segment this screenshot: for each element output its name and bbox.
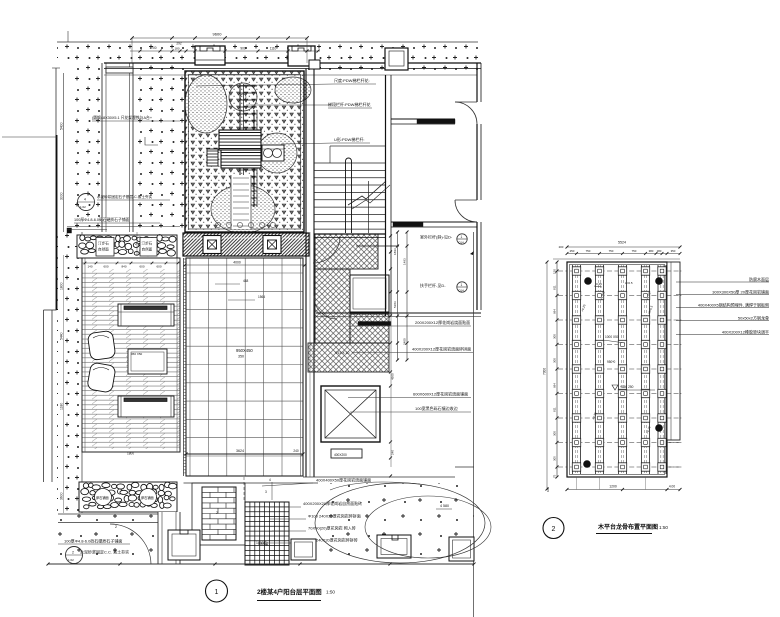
svg-text:1893: 1893 <box>393 248 397 255</box>
svg-text:2: 2 <box>552 526 556 533</box>
svg-text:5524: 5524 <box>618 241 626 245</box>
svg-text:1700: 1700 <box>149 46 156 50</box>
svg-text:水泥砂浆固定石子基层-C.素土夯实: 水泥砂浆固定石子基层-C.素土夯实 <box>97 194 153 199</box>
svg-text:汀步石: 汀步石 <box>98 241 109 246</box>
svg-text:5400: 5400 <box>60 122 64 130</box>
svg-text:600: 600 <box>156 265 161 269</box>
svg-text:750: 750 <box>609 249 614 253</box>
svg-text:684: 684 <box>553 383 557 388</box>
svg-text:1800: 1800 <box>60 282 64 290</box>
svg-text:1: 1 <box>461 235 463 239</box>
svg-text:3: 3 <box>265 490 267 494</box>
svg-text:防腐木面层: 防腐木面层 <box>749 276 769 282</box>
svg-text:400X200X20厚花岗岩自然面贴砖: 400X200X20厚花岗岩自然面贴砖 <box>303 500 362 506</box>
svg-text:100厚Φ4.8-6.0砾石硬质石子铺面: 100厚Φ4.8-6.0砾石硬质石子铺面 <box>64 538 122 544</box>
svg-text:200: 200 <box>559 245 564 249</box>
svg-text:292: 292 <box>176 42 182 46</box>
svg-text:75: 75 <box>553 474 557 478</box>
svg-text:750: 750 <box>632 249 637 253</box>
svg-text:180: 180 <box>546 487 550 492</box>
svg-text:200X200X12厚花岗岩烧面贴面: 200X200X12厚花岗岩烧面贴面 <box>415 319 470 325</box>
svg-text:4: 4 <box>269 478 271 482</box>
svg-text:梯段栏杆:PDW梯栏杆花: 梯段栏杆:PDW梯栏杆花 <box>328 101 370 107</box>
svg-text:400X400X50厚花岗岩烧面铺面: 400X400X50厚花岗岩烧面铺面 <box>316 477 371 483</box>
svg-text:900: 900 <box>240 46 246 50</box>
svg-text:3624: 3624 <box>236 449 244 453</box>
svg-text:180: 180 <box>657 249 662 253</box>
svg-text:D14: D14 <box>459 289 465 293</box>
svg-text:1:02: 1:02 <box>80 205 86 209</box>
svg-text:1110: 1110 <box>270 46 277 50</box>
svg-text:1:50: 1:50 <box>326 590 335 595</box>
svg-text:1180: 1180 <box>60 403 64 410</box>
svg-text:400X200: 400X200 <box>334 453 347 457</box>
svg-text:D14: D14 <box>459 241 465 245</box>
svg-text:L=0.5: L=0.5 <box>625 281 633 285</box>
svg-text:1200: 1200 <box>609 485 617 489</box>
svg-text:1:50: 1:50 <box>659 525 668 530</box>
svg-text:+150 250: +150 250 <box>620 385 634 389</box>
svg-text:5440: 5440 <box>60 332 64 340</box>
svg-text:4 580: 4 580 <box>440 504 449 508</box>
svg-text:7300: 7300 <box>543 368 547 375</box>
svg-text:180: 180 <box>174 46 179 50</box>
svg-text:950X450: 950X450 <box>236 348 253 353</box>
svg-text:250: 250 <box>570 249 575 253</box>
svg-text:50x50x2方钢龙骨: 50x50x2方钢龙骨 <box>738 314 769 320</box>
svg-text:300: 300 <box>553 334 557 339</box>
svg-text:3000: 3000 <box>60 192 64 200</box>
svg-text:140: 140 <box>87 265 92 269</box>
svg-text:1000 X50: 1000 X50 <box>605 335 619 339</box>
svg-text:1: 1 <box>215 589 219 596</box>
svg-text:水泥砂浆固定C.C. 素土夯实: 水泥砂浆固定C.C. 素土夯实 <box>80 549 129 555</box>
svg-text:9600: 9600 <box>213 32 223 37</box>
svg-text:自然面: 自然面 <box>98 247 109 252</box>
svg-text:3600: 3600 <box>60 492 64 500</box>
svg-text:100宽黑色砾石镶边收边: 100宽黑色砾石镶边收边 <box>415 405 458 411</box>
svg-text:350: 350 <box>238 355 244 359</box>
svg-text:350: 350 <box>671 249 676 253</box>
svg-text:811: 811 <box>553 407 557 412</box>
svg-text:300: 300 <box>553 431 557 436</box>
svg-text:4.00: 4.00 <box>669 485 675 489</box>
svg-text:4: 4 <box>84 198 86 202</box>
svg-text:950*0: 950*0 <box>607 360 616 364</box>
svg-text:自然面: 自然面 <box>142 247 153 252</box>
svg-text:150: 150 <box>553 269 557 274</box>
svg-text:240: 240 <box>293 449 299 453</box>
svg-text:1800: 1800 <box>127 452 134 456</box>
svg-text:1493: 1493 <box>403 258 407 265</box>
svg-text:950 X50: 950 X50 <box>131 352 143 356</box>
svg-text:1:02: 1:02 <box>68 558 74 562</box>
svg-text:600: 600 <box>103 265 108 269</box>
svg-text:840: 840 <box>121 265 126 269</box>
svg-text:扶手栏杆-见D-: 扶手栏杆-见D- <box>420 282 446 288</box>
svg-text:1000粒: 1000粒 <box>256 540 268 545</box>
svg-text:600: 600 <box>139 265 144 269</box>
svg-text:300: 300 <box>553 358 557 363</box>
svg-text:卵石铺面: 卵石铺面 <box>96 495 109 500</box>
svg-text:卵石铺面: 卵石铺面 <box>141 495 154 500</box>
svg-text:2: 2 <box>216 511 218 515</box>
svg-text:300X300X50厚 20厚花岗岩铺面: 300X300X50厚 20厚花岗岩铺面 <box>712 288 769 294</box>
svg-text:1: 1 <box>461 283 463 287</box>
svg-text:4000: 4000 <box>233 261 241 265</box>
svg-text:600X600X12厚花岗岩烧面铺面: 600X600X12厚花岗岩烧面铺面 <box>413 391 468 397</box>
svg-text:室外栏杆(斜)-见D-: 室外栏杆(斜)-见D- <box>420 234 453 240</box>
svg-text:1564: 1564 <box>258 295 265 299</box>
svg-text:2: 2 <box>72 551 74 555</box>
svg-text:2: 2 <box>115 525 117 529</box>
svg-text:汀步石: 汀步石 <box>142 241 153 246</box>
svg-text:2楼某4户阳台层平面图: 2楼某4户阳台层平面图 <box>257 587 322 596</box>
svg-text:448: 448 <box>243 279 249 283</box>
svg-text:5183: 5183 <box>393 301 397 308</box>
svg-text:750: 750 <box>586 249 591 253</box>
svg-text:305: 305 <box>553 456 557 461</box>
svg-text:811: 811 <box>553 285 557 290</box>
svg-text:380: 380 <box>649 249 654 253</box>
svg-text:400X400X5钢结构预埋件, 满焊于钢板侧: 400X400X5钢结构预埋件, 满焊于钢板侧 <box>698 301 769 307</box>
svg-text:(圆钢48X30X5.1 尺花架埋铁与A台+: (圆钢48X30X5.1 尺花架埋铁与A台+ <box>92 115 153 120</box>
svg-text:400X200X12厚花岗岩烧面碎拼面: 400X200X12厚花岗岩烧面碎拼面 <box>412 346 471 352</box>
svg-text:2: 2 <box>135 242 137 246</box>
svg-text:100厚Φ4.8-6.0砾石硬质石子铺面: 100厚Φ4.8-6.0砾石硬质石子铺面 <box>74 217 130 222</box>
svg-text:U形:PDW梯栏杆:: U形:PDW梯栏杆: <box>334 136 364 142</box>
svg-text:0.25: 0.25 <box>596 282 602 286</box>
svg-text:400X200X12橡胶垫块调平: 400X200X12橡胶垫块调平 <box>722 328 769 334</box>
svg-text:尺度:PDW梯栏杆花:: 尺度:PDW梯栏杆花: <box>334 77 370 83</box>
svg-text:2400: 2400 <box>403 338 407 345</box>
svg-text:684: 684 <box>553 309 557 314</box>
svg-text:Φ15 X 10: Φ15 X 10 <box>335 351 350 355</box>
svg-text:木平台龙骨布置平面图: 木平台龙骨布置平面图 <box>597 523 658 531</box>
